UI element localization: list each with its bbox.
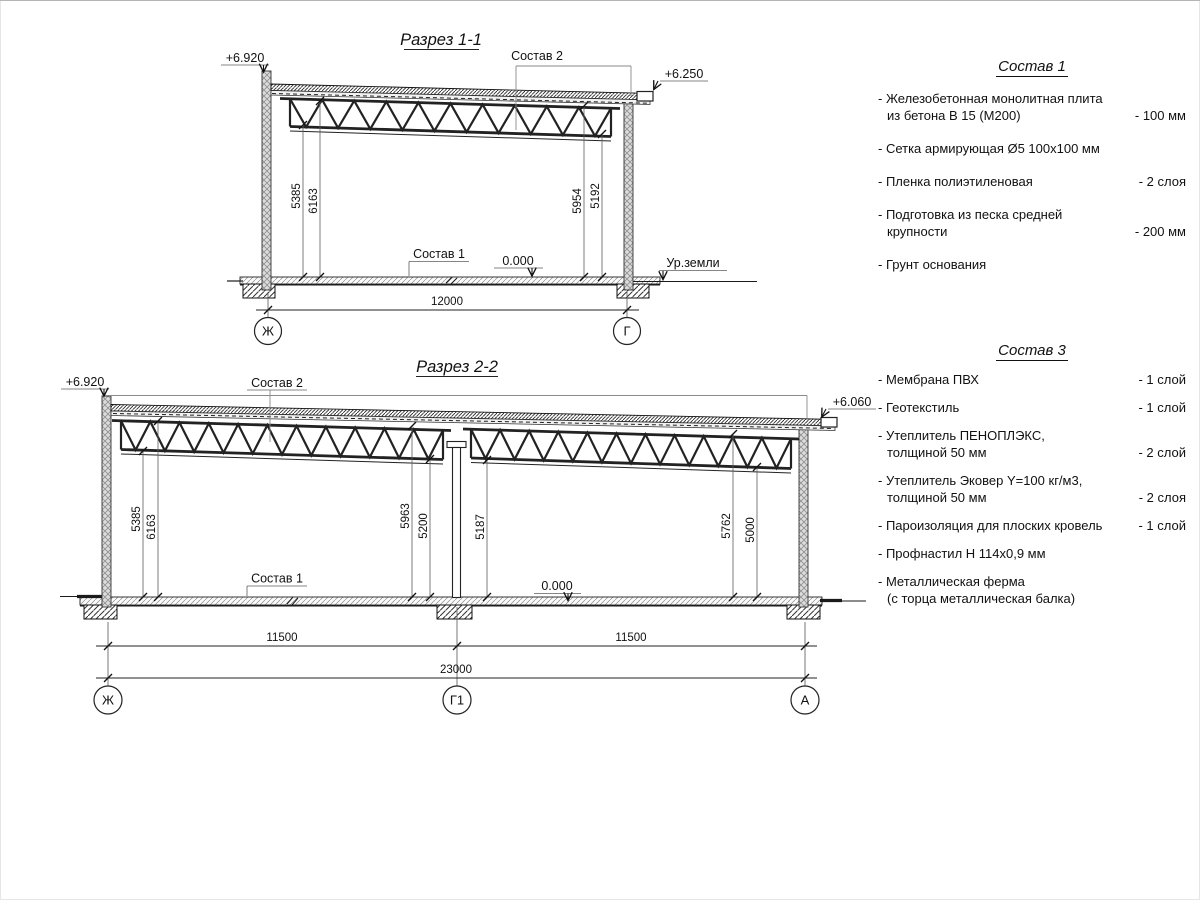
- roof-edge-cap: [637, 92, 653, 102]
- legend-item: - Пароизоляция для плоских кровель- 1 сл…: [878, 517, 1186, 534]
- svg-text:Ур.земли: Ур.земли: [666, 256, 719, 270]
- elevation-right: +6.250: [654, 67, 708, 89]
- svg-text:0.000: 0.000: [541, 579, 572, 593]
- svg-text:Состав 2: Состав 2: [251, 376, 303, 390]
- axis-bubble-g: Г: [614, 318, 641, 345]
- footing-middle: [437, 605, 472, 619]
- footing-left: [84, 605, 117, 619]
- svg-text:Г1: Г1: [450, 693, 464, 708]
- dim-23000: 23000: [440, 664, 472, 676]
- legend-sostav-3: Состав 3 - Мембрана ПВХ- 1 слой- Геотекс…: [878, 342, 1186, 618]
- svg-text:Состав 1: Состав 1: [251, 572, 303, 586]
- legend-item-name: - Подготовка из песка среднейкрупности: [878, 206, 1062, 240]
- legend-item: - Утеплитель ПЕНОПЛЭКС,толщиной 50 мм- 2…: [878, 427, 1186, 461]
- dim-5385: 5385: [131, 506, 143, 532]
- axis-bubble-g1: Г1: [443, 686, 471, 714]
- span-dimension: 12000: [256, 292, 639, 317]
- roof-truss: [280, 99, 620, 142]
- legend-item-value: - 1 слой: [1132, 517, 1186, 534]
- axis-bubble-zh: Ж: [255, 318, 282, 345]
- floor-slab: [240, 277, 660, 284]
- section-2-title: Разрез 2-2: [416, 358, 498, 376]
- svg-text:А: А: [801, 693, 810, 708]
- dim-6163: 6163: [146, 514, 158, 540]
- roof-truss-right-bay: [463, 429, 799, 473]
- elevation-left: +6.920: [61, 375, 109, 396]
- callout-sostav-1: Состав 1: [247, 572, 307, 597]
- dim-11500-left: 11500: [266, 632, 297, 644]
- middle-column: [453, 448, 461, 598]
- svg-text:Ж: Ж: [102, 693, 114, 708]
- roof-truss-left-bay: [112, 421, 451, 465]
- legend-item-name: - Железобетонная монолитная плитаиз бето…: [878, 90, 1103, 124]
- legend-item-value: - 200 мм: [1129, 223, 1186, 240]
- svg-text:Состав 1: Состав 1: [413, 247, 465, 261]
- dim-5963: 5963: [400, 503, 412, 529]
- wall-left: [262, 71, 271, 290]
- wall-left: [102, 396, 111, 607]
- legend-title: Состав 1: [878, 58, 1186, 75]
- legend-sostav-1: Состав 1 - Железобетонная монолитная пли…: [878, 58, 1186, 289]
- callout-sostav-1: Состав 1: [409, 247, 469, 276]
- dim-5200: 5200: [418, 513, 430, 539]
- legend-item-value: - 100 мм: [1129, 107, 1186, 124]
- legend-item: - Подготовка из песка среднейкрупности- …: [878, 206, 1186, 240]
- drawing-canvas: Разрез 1-1 Состав 2 +6.920: [0, 0, 1200, 900]
- legend-item-name: - Пароизоляция для плоских кровель: [878, 517, 1102, 534]
- interior-dimensions: 5385 6163 5963 5200 5187 5762 5000: [131, 417, 761, 601]
- legend-item-value: - 2 слоя: [1133, 489, 1186, 506]
- svg-text:+6.920: +6.920: [66, 375, 105, 389]
- svg-text:Ж: Ж: [262, 324, 274, 339]
- dim-11500-right: 11500: [615, 632, 646, 644]
- legend-item-name: - Грунт основания: [878, 256, 986, 273]
- elevation-left: +6.920: [221, 51, 269, 72]
- axis-bubble-a: А: [791, 686, 819, 714]
- floor-slab: [80, 597, 822, 605]
- dim-6163: 6163: [308, 188, 320, 214]
- legend-item-name: - Мембрана ПВХ: [878, 371, 979, 388]
- legend-item: - Мембрана ПВХ- 1 слой: [878, 371, 1186, 388]
- svg-text:0.000: 0.000: [502, 254, 533, 268]
- legend-item-name: - Геотекстиль: [878, 399, 959, 416]
- dim-12000: 12000: [431, 296, 463, 308]
- legend-item-value: - 2 слоя: [1133, 173, 1186, 190]
- legend-item: - Металлическая ферма(с торца металличес…: [878, 573, 1186, 607]
- section-1-title: Разрез 1-1: [400, 31, 482, 49]
- svg-text:+6.250: +6.250: [665, 67, 704, 81]
- dim-5954: 5954: [572, 188, 584, 214]
- legend-item: - Утеплитель Эковер Y=100 кг/м3,толщиной…: [878, 472, 1186, 506]
- section-2: Разрез 2-2: [60, 358, 876, 714]
- ground-level-label: Ур.земли: [659, 256, 727, 279]
- column-cap-plate: [447, 442, 466, 448]
- legend-item-value: - 1 слой: [1132, 371, 1186, 388]
- elevation-right: +6.060: [822, 395, 876, 417]
- legend-item: - Пленка полиэтиленовая- 2 слоя: [878, 173, 1186, 190]
- legend-item-value: - 2 слой: [1132, 444, 1186, 461]
- legend-items: - Мембрана ПВХ- 1 слой- Геотекстиль- 1 с…: [878, 371, 1186, 607]
- svg-text:+6.060: +6.060: [833, 395, 872, 409]
- zero-level-mark: 0.000: [494, 254, 543, 276]
- wall-right: [799, 421, 808, 607]
- legend-item: - Железобетонная монолитная плитаиз бето…: [878, 90, 1186, 124]
- legend-item-value: - 1 слой: [1132, 399, 1186, 416]
- svg-text:+6.920: +6.920: [226, 51, 265, 65]
- legend-item-name: - Пленка полиэтиленовая: [878, 173, 1033, 190]
- dim-5187: 5187: [475, 514, 487, 540]
- wall-right: [624, 101, 633, 290]
- legend-item-name: - Металлическая ферма(с торца металличес…: [878, 573, 1075, 607]
- legend-item: - Геотекстиль- 1 слой: [878, 399, 1186, 416]
- legend-item-name: - Утеплитель ПЕНОПЛЭКС,толщиной 50 мм: [878, 427, 1045, 461]
- legend-item-name: - Сетка армирующая Ø5 100x100 мм: [878, 140, 1100, 157]
- legend-title: Состав 3: [878, 342, 1186, 359]
- dim-5192: 5192: [590, 183, 602, 209]
- axis-bubble-zh: Ж: [94, 686, 122, 714]
- section-1: Разрез 1-1 Состав 2 +6.920: [221, 31, 757, 345]
- callout-sostav-2: Состав 2: [511, 49, 563, 63]
- legend-item: - Сетка армирующая Ø5 100x100 мм: [878, 140, 1186, 157]
- legend-item: - Профнастил Н 114х0,9 мм: [878, 545, 1186, 562]
- dim-5385: 5385: [291, 183, 303, 209]
- legend-item: - Грунт основания: [878, 256, 1186, 273]
- dim-5000: 5000: [745, 517, 757, 543]
- dim-5762: 5762: [721, 513, 733, 539]
- legend-items: - Железобетонная монолитная плитаиз бето…: [878, 90, 1186, 273]
- legend-item-name: - Профнастил Н 114х0,9 мм: [878, 545, 1046, 562]
- legend-item-name: - Утеплитель Эковер Y=100 кг/м3,толщиной…: [878, 472, 1082, 506]
- svg-text:Г: Г: [623, 324, 630, 339]
- roof-edge-cap: [821, 418, 837, 428]
